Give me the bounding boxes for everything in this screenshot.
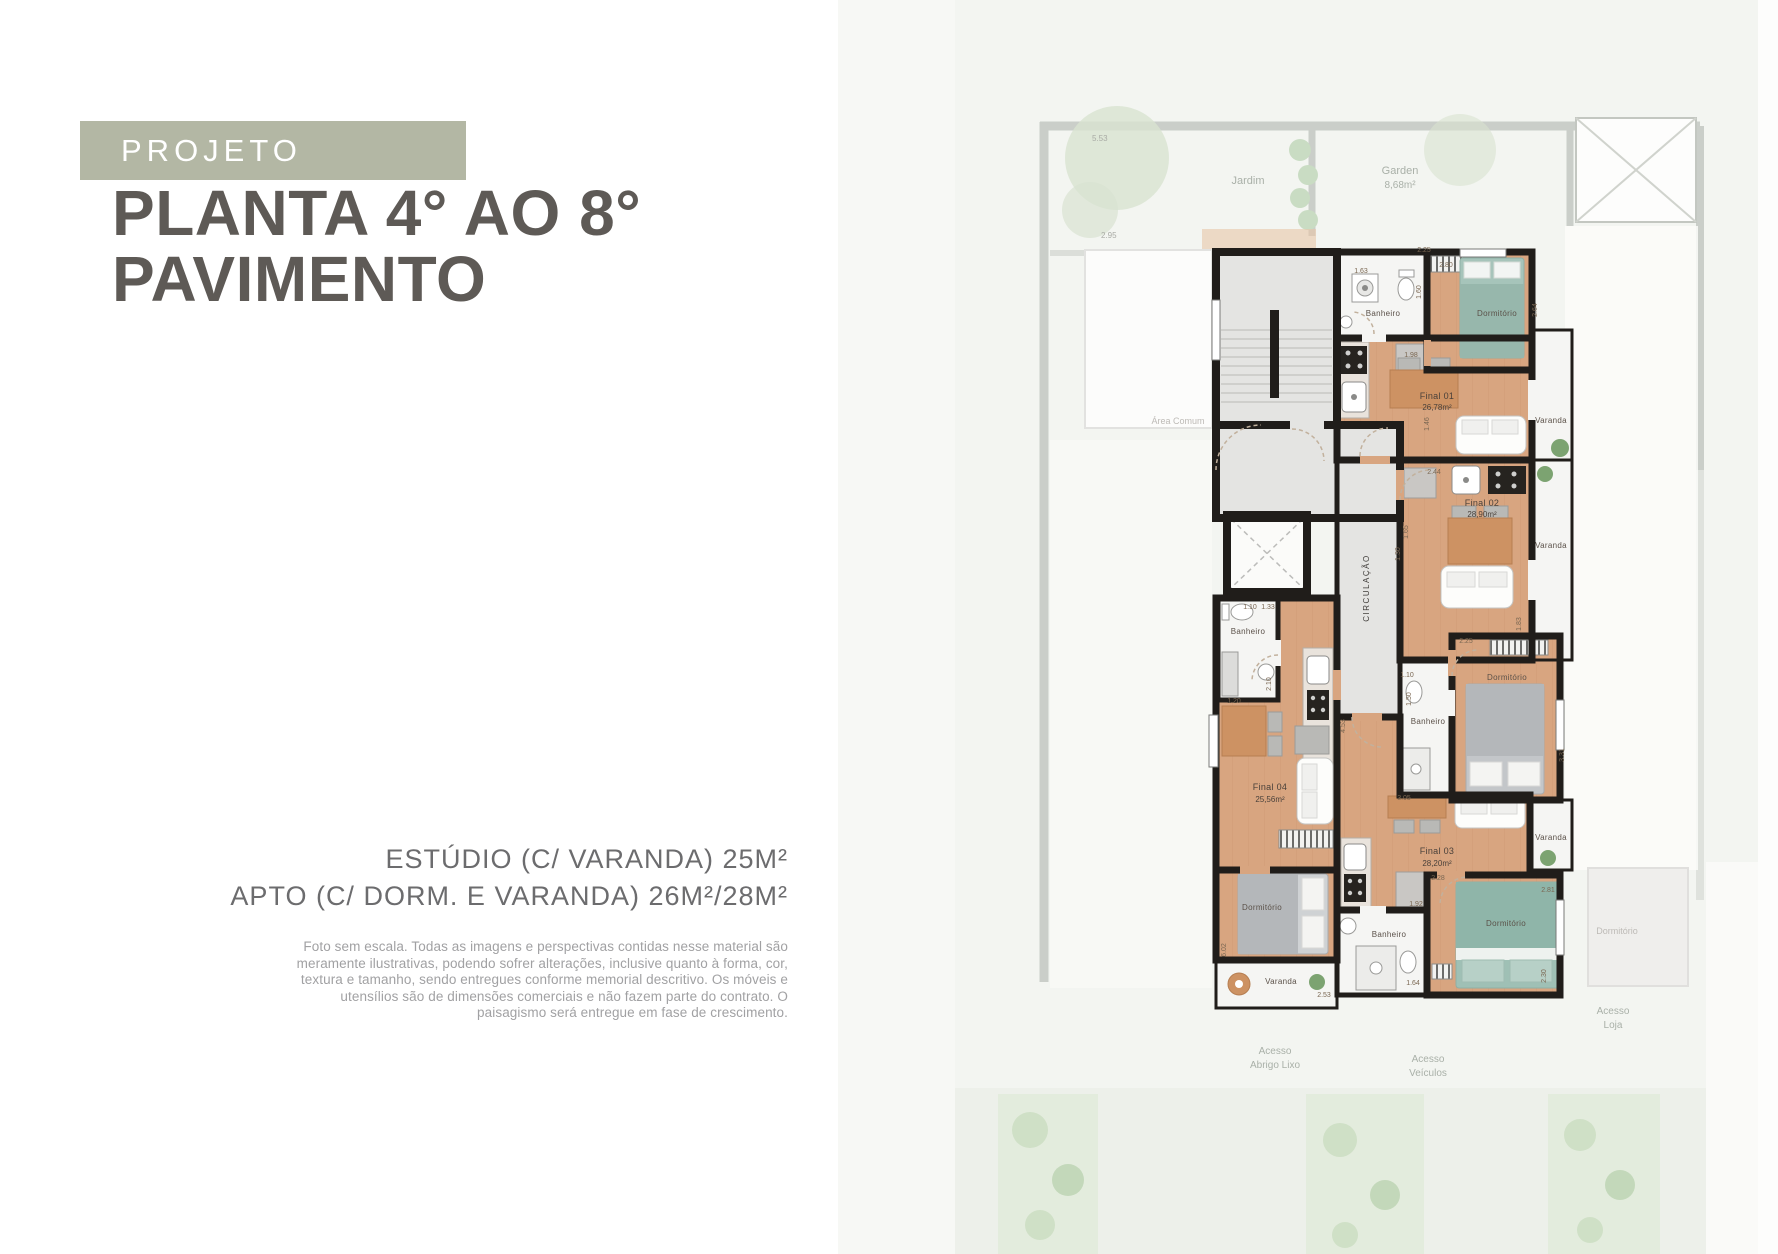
stair-divider [1270, 310, 1279, 398]
dim-label: 4.53 [1340, 719, 1347, 733]
acesso-abrigo-label-2: Abrigo Lixo [1250, 1060, 1300, 1071]
dim-label: 2.64 [1532, 303, 1539, 317]
area-comum-label: Área Comum [1151, 416, 1204, 426]
planting-strips [998, 1094, 1660, 1254]
plant-icon [1551, 439, 1569, 457]
dim-label: 2.81 [1541, 887, 1555, 894]
garden-label: Garden [1382, 165, 1419, 177]
final01-label: Final 01 [1420, 391, 1454, 401]
dim-label: 2.80 [1439, 262, 1453, 269]
dim-label: 2.25 [1459, 638, 1473, 645]
dim-label: 2.10 [1266, 677, 1273, 691]
dim-label: 1.50 [1406, 692, 1413, 706]
varanda-label-f04: Varanda [1265, 977, 1297, 986]
acesso-abrigo-label-1: Acesso [1259, 1046, 1292, 1057]
final03-label: Final 03 [1420, 846, 1454, 856]
faded-courtyard [1050, 440, 1212, 988]
dim-label: 2.53 [1317, 992, 1331, 999]
banheiro-label-f01: Banheiro [1366, 309, 1401, 318]
varanda-label-f02: Varanda [1535, 541, 1567, 550]
floor-plan-image: Jardim Garden 8,68m² Área Comum Acesso A… [0, 0, 1778, 1254]
bed-icon-f04 [1238, 874, 1328, 954]
acesso-loja-label-2: Loja [1604, 1020, 1623, 1031]
dim-label: 1.92 [1409, 901, 1423, 908]
banheiro-label-f04: Banheiro [1231, 627, 1266, 636]
banheiro-label-f03: Banheiro [1372, 930, 1407, 939]
plant-icon [1540, 850, 1556, 866]
wardrobe-icon [1279, 830, 1333, 848]
sofa-icon-f02 [1441, 566, 1513, 608]
jardim-label: Jardim [1231, 175, 1264, 187]
faded-interior [1565, 226, 1698, 870]
dim-label: 1.63 [1354, 268, 1368, 275]
final02-label: Final 02 [1465, 498, 1499, 508]
sofa-icon-f01 [1456, 416, 1526, 454]
varanda-label-f03: Varanda [1535, 833, 1567, 842]
skylight [1576, 118, 1696, 222]
dim-label: 2.95 [1101, 231, 1117, 240]
dormitorio-label-f04: Dormitório [1242, 903, 1282, 912]
plant-icon [1537, 466, 1553, 482]
dim-label: 1.10 [1243, 604, 1257, 611]
dim-label: 2.25 [1417, 247, 1431, 254]
final01-area: 26,78m² [1422, 403, 1452, 412]
dormitorio-label-f01: Dormitório [1477, 309, 1517, 318]
dim-label: 1.30 [1395, 547, 1402, 561]
dim-label: 1.10 [1400, 672, 1414, 679]
acesso-veiculos-label-1: Acesso [1412, 1054, 1445, 1065]
acesso-veiculos-label-2: Veículos [1409, 1068, 1447, 1079]
dim-label: 2.28 [1431, 875, 1445, 882]
brochure-page: PROJETO PLANTA 4° AO 8° PAVIMENTO ESTÚDI… [0, 0, 1778, 1254]
dim-label: 1.98 [1404, 352, 1418, 359]
page-edge [1758, 0, 1778, 1254]
area-comum-room [1085, 250, 1212, 428]
faded-dormitorio-label: Dormitório [1596, 926, 1638, 936]
final04-label: Final 04 [1253, 782, 1287, 792]
dormitorio-label-gray: Dormitório [1487, 673, 1527, 682]
dim-label: 1.65 [1403, 525, 1410, 539]
banheiro-label-mid: Banheiro [1411, 717, 1446, 726]
dim-label: 1.33 [1261, 604, 1275, 611]
final03-area: 28,20m² [1422, 859, 1452, 868]
dim-label: 1.64 [1406, 980, 1420, 987]
dim-label: 2.30 [1541, 969, 1548, 983]
final04-area: 25,56m² [1255, 795, 1285, 804]
varanda-label-f01: Varanda [1535, 416, 1567, 425]
dormitorio-label-teal: Dormitório [1486, 919, 1526, 928]
sofa-icon-f04 [1297, 758, 1333, 824]
dim-label: 5.53 [1092, 134, 1108, 143]
kitchen-icon-f02 [1404, 466, 1526, 498]
dim-label: 2.44 [1427, 469, 1441, 476]
dim-label: 1.46 [1424, 417, 1431, 431]
dim-label: 3.05 [1397, 795, 1411, 802]
tv-cabinet-icon [1295, 726, 1329, 754]
acesso-loja-label-1: Acesso [1597, 1006, 1630, 1017]
dim-label: 3.31 [1559, 748, 1566, 762]
final02-area: 28,90m² [1467, 510, 1497, 519]
dim-label: 6.02 [1221, 943, 1228, 957]
dim-label: 1.20 [1227, 698, 1241, 705]
garden-area-label: 8,68m² [1384, 180, 1416, 191]
dining-table-f04 [1222, 706, 1282, 756]
circulacao-label: CIRCULAÇÃO [1362, 554, 1371, 621]
dim-label: 1.83 [1516, 617, 1523, 631]
dim-label: 1.60 [1416, 285, 1423, 299]
